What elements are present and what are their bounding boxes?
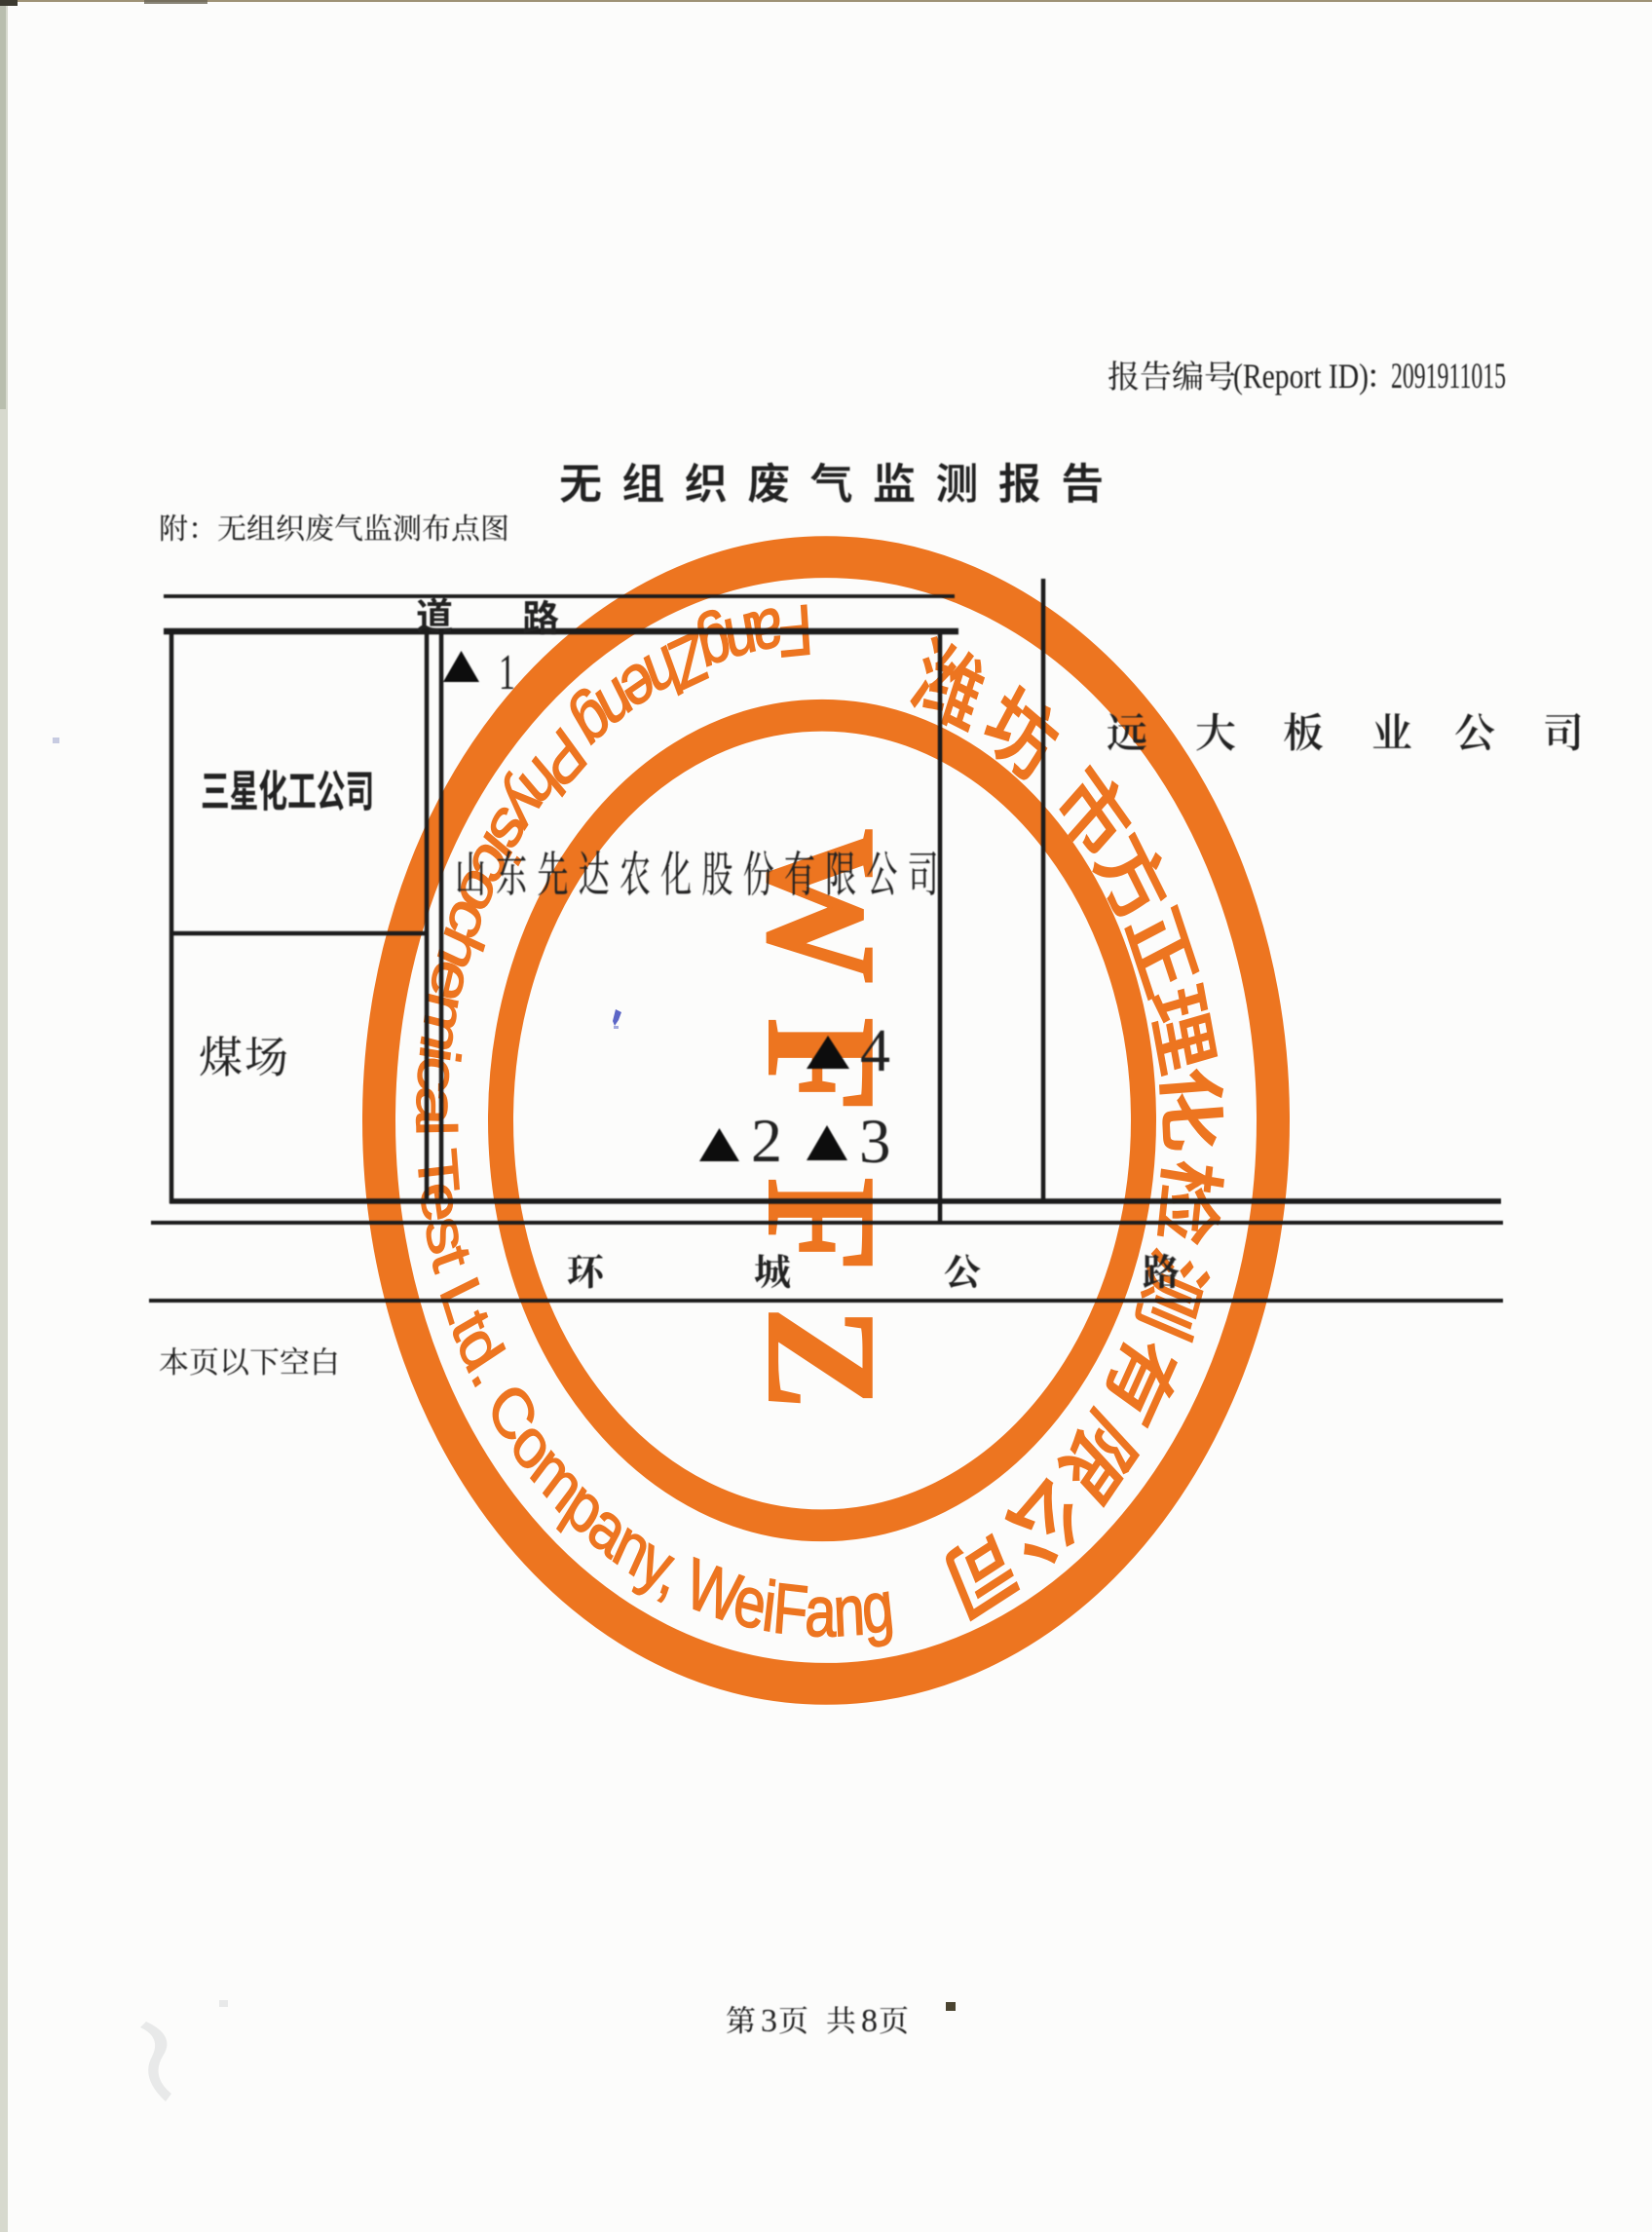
svg-text:(Report ID): (Report ID) xyxy=(1233,357,1369,396)
svg-text:3: 3 xyxy=(761,2003,777,2039)
svg-text:3: 3 xyxy=(859,1107,891,1177)
svg-text:Z: Z xyxy=(735,1306,909,1411)
svg-text:2091911015: 2091911015 xyxy=(1391,357,1506,397)
svg-text:1: 1 xyxy=(499,645,515,700)
svg-text:8: 8 xyxy=(861,2003,878,2039)
svg-text:W: W xyxy=(735,828,909,984)
svg-text:2: 2 xyxy=(751,1106,782,1175)
svg-text:4: 4 xyxy=(860,1018,890,1084)
